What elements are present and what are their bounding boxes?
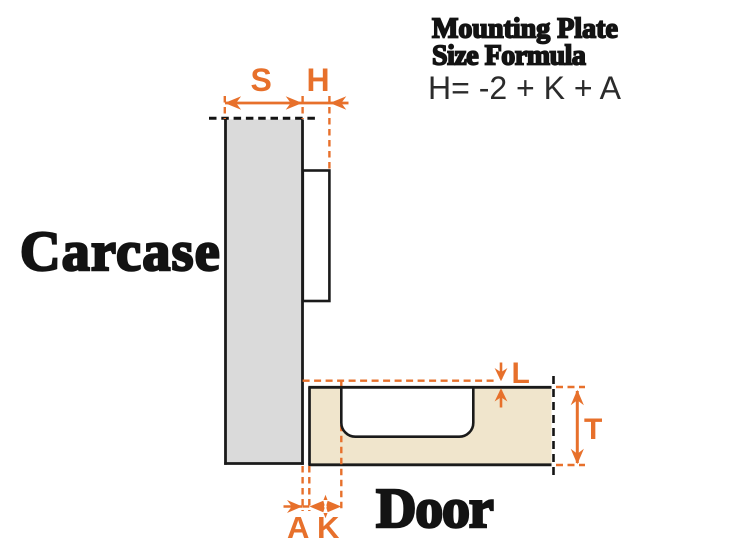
svg-text:H= -2 + K + A: H= -2 + K + A — [428, 70, 622, 106]
svg-text:Carcase: Carcase — [20, 221, 221, 283]
svg-text:H: H — [307, 62, 330, 98]
svg-text:Size Formula: Size Formula — [432, 41, 586, 72]
svg-text:S: S — [251, 62, 272, 98]
svg-text:Door: Door — [376, 478, 493, 540]
svg-text:T: T — [584, 413, 602, 446]
svg-text:L: L — [512, 357, 530, 390]
svg-text:K: K — [317, 510, 340, 545]
svg-text:A: A — [287, 510, 309, 545]
